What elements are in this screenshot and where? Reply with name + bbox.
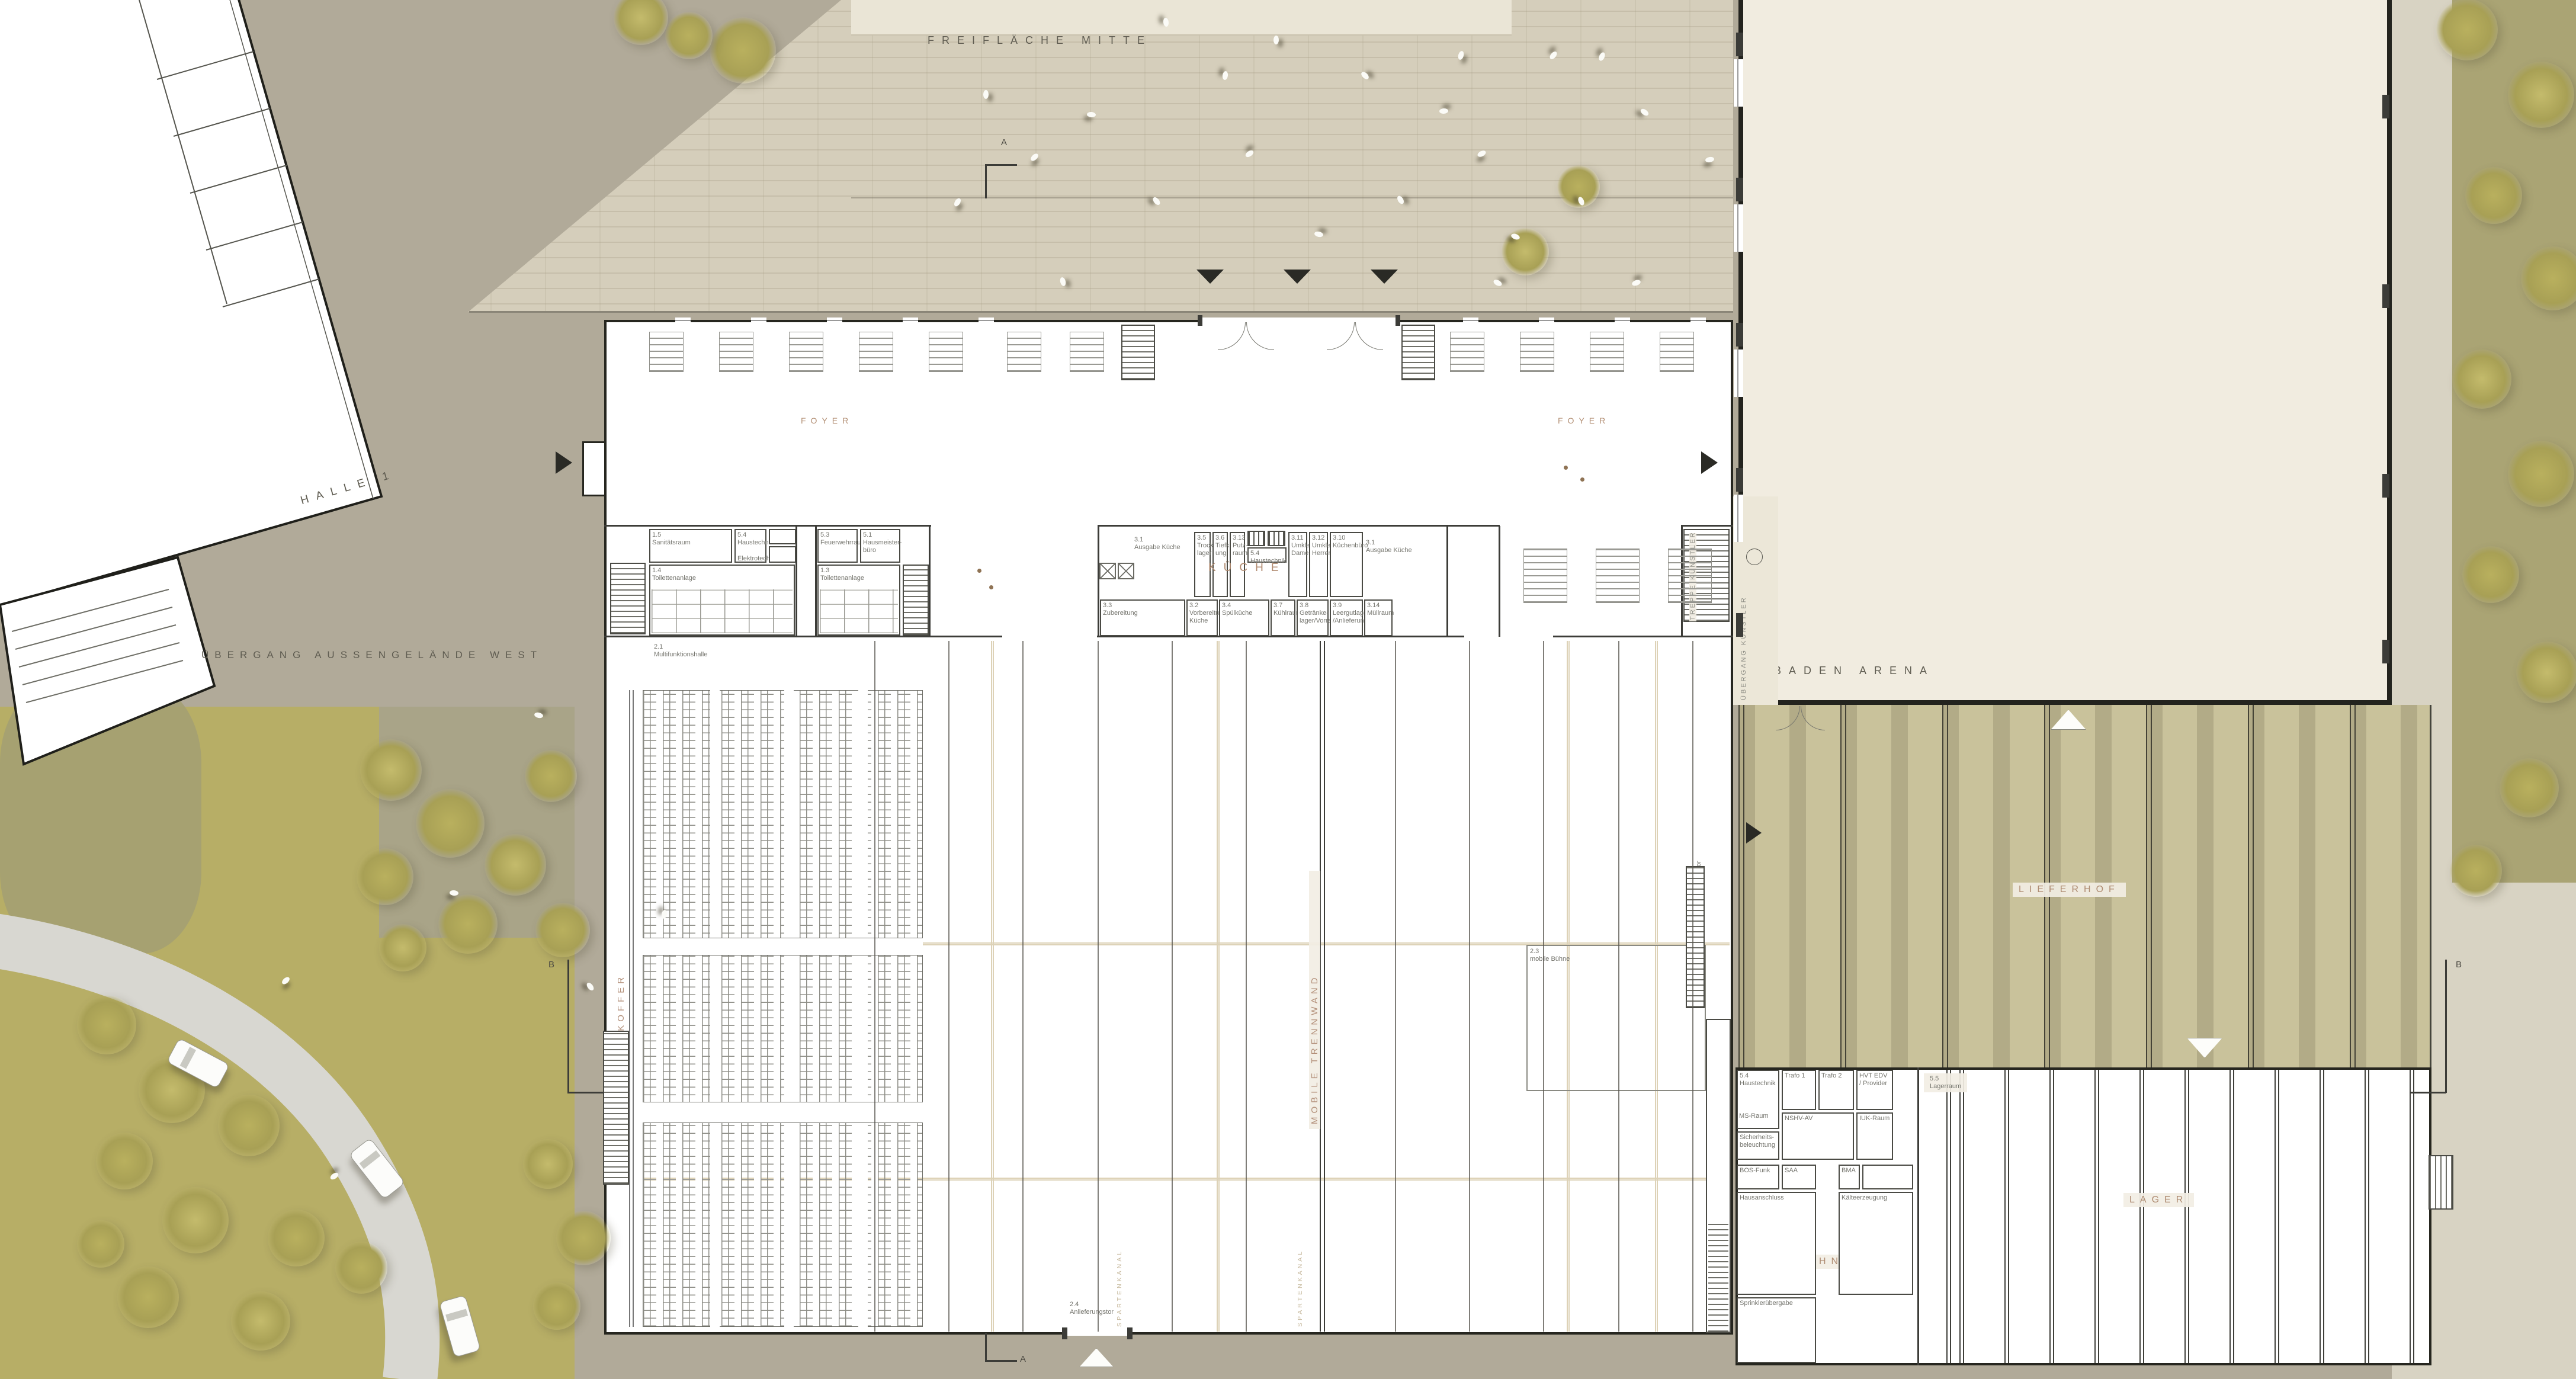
foyer-table-group xyxy=(1523,549,1567,603)
room-name: Sprinklerübergabe xyxy=(1740,1300,1793,1307)
tree xyxy=(416,789,485,858)
south-gate-opening xyxy=(1066,1331,1128,1336)
room-hausmeisterbuero: 5.1 Hausmeister-büro xyxy=(860,529,900,563)
room-name: SAA xyxy=(1785,1167,1798,1174)
room-id: 3.12 xyxy=(1312,534,1325,542)
room-id: 3.9 xyxy=(1333,602,1360,610)
tree xyxy=(710,17,776,84)
room-id: 3.6 xyxy=(1215,534,1225,542)
room-id: 3.3 xyxy=(1103,602,1182,610)
room-name: Müllraum xyxy=(1367,610,1394,617)
seating-aisle xyxy=(710,690,720,1327)
tree xyxy=(556,1211,611,1265)
room-name: Trafo 2 xyxy=(1821,1072,1842,1079)
tree xyxy=(357,848,413,905)
foyer-bench xyxy=(859,332,893,372)
tree xyxy=(2508,441,2574,507)
arena-pier xyxy=(2382,474,2389,498)
plant-dot xyxy=(1580,477,1584,482)
south-gate-name: Anlieferungstor xyxy=(1070,1309,1114,1316)
foyer-bench xyxy=(1007,332,1041,372)
door-leaf-line xyxy=(1463,320,1478,321)
west-passage-label: ÜBERGANG AUSSENGELÄNDE WEST xyxy=(201,649,543,661)
room-small xyxy=(1862,1165,1913,1189)
stair xyxy=(903,565,929,636)
wall xyxy=(1917,1067,1919,1365)
tree xyxy=(485,834,546,896)
section-line xyxy=(567,1092,604,1093)
arena-window xyxy=(1734,204,1743,252)
room-name: Trafo 1 xyxy=(1785,1072,1805,1079)
foyer-table-group xyxy=(1668,549,1712,603)
baden-arena-label: BADEN ARENA xyxy=(1774,665,1935,677)
section-marker-a-bottom: A xyxy=(1020,1354,1026,1364)
seating-aisle xyxy=(784,690,794,1327)
arena-pier xyxy=(1736,33,1743,56)
foyer-bench xyxy=(1520,332,1554,372)
section-line xyxy=(985,164,987,198)
room-id: 3.2 xyxy=(1189,602,1215,610)
arena-window xyxy=(1734,59,1743,107)
hall-room-label: 2.1 Multifunktionshalle xyxy=(654,643,708,659)
utility-line xyxy=(1217,641,1220,1332)
window-line xyxy=(1737,349,1738,397)
room-id: 3.1 xyxy=(1366,539,1412,547)
mobile-trennwand-label: MOBILE TRENNWAND xyxy=(1309,871,1320,1129)
room-id: 3.11 xyxy=(1291,534,1304,542)
room-name: Küchenbüro xyxy=(1333,542,1368,549)
foyer-bench xyxy=(719,332,753,372)
room-name: Getränke-lager/Vorrat xyxy=(1300,610,1333,624)
room-umkleide-damen: 3.11 Umkleide Damen xyxy=(1288,532,1307,597)
tree xyxy=(2450,845,2502,897)
lager-exterior-stair xyxy=(2429,1155,2453,1210)
section-line xyxy=(2410,1092,2446,1093)
wandkoffer-wall xyxy=(633,690,634,1327)
foyer-label-left: FOYER xyxy=(801,416,853,425)
room-id: 1.4 xyxy=(652,567,792,575)
foyer-table-group xyxy=(1596,549,1640,603)
hall-room-name: Multifunktionshalle xyxy=(654,651,708,658)
room-name: Ausgabe Küche xyxy=(1366,547,1412,554)
arena-window xyxy=(1734,495,1743,542)
room-id: 1.3 xyxy=(820,567,897,575)
room-id: 5.4 xyxy=(737,531,764,539)
room-umkleide-herren: 3.12 Umkleide Herren xyxy=(1309,532,1328,597)
baden-arena-building xyxy=(1738,0,2392,705)
utility-line xyxy=(991,641,994,1332)
room-id: 5.1 xyxy=(863,531,897,539)
column-grid-line xyxy=(1543,641,1544,1332)
tree xyxy=(2508,62,2574,128)
column-grid-line xyxy=(1618,641,1619,1332)
foyer-bench xyxy=(1070,332,1104,372)
column-grid-line xyxy=(1022,641,1024,1332)
room-id: 3.13 xyxy=(1233,534,1242,542)
room-vorbereitung: 3.2 Vorbereitung Küche xyxy=(1186,599,1218,636)
tree xyxy=(268,1210,325,1266)
wall xyxy=(815,526,817,637)
gate-jamb xyxy=(1198,315,1202,326)
door-leaf-line xyxy=(1690,320,1706,321)
room-kuehlraum: 3.7 Kühlraum xyxy=(1271,599,1295,636)
room-id: 3.1 xyxy=(1134,536,1180,544)
west-exterior-stair xyxy=(603,1031,629,1185)
toilet-stalls xyxy=(652,589,793,633)
west-stair xyxy=(610,563,646,634)
lift-shaft xyxy=(1099,563,1116,579)
room-id: 3.14 xyxy=(1367,602,1390,610)
room-muellraum: 3.14 Müllraum xyxy=(1364,599,1393,636)
room-hausanschluss: Hausanschluss xyxy=(1737,1192,1816,1295)
tree xyxy=(77,995,136,1054)
tree xyxy=(117,1266,179,1328)
tree xyxy=(231,1291,290,1351)
hall-room-id: 2.1 xyxy=(654,643,708,651)
tribune-seating xyxy=(643,690,923,1327)
column-grid-line xyxy=(1172,641,1173,1332)
room-ms-raum: MS-Raum xyxy=(1739,1112,1769,1120)
wall xyxy=(929,526,931,637)
room-kuechenbuero: 3.10 Küchenbüro xyxy=(1330,532,1363,597)
spartenkanal-label: SPARTENKANAL xyxy=(1116,1226,1123,1327)
room-id: 5.4 xyxy=(1740,1072,1776,1080)
room-id: 3.10 xyxy=(1333,534,1360,542)
east-wall-ladder xyxy=(1708,1223,1728,1332)
room-name: Toilettenanlage xyxy=(652,575,696,582)
plaza-label: FREIFLÄCHE MITTE xyxy=(928,34,1152,47)
tree xyxy=(77,1220,124,1268)
gate-jamb xyxy=(1127,1327,1133,1339)
column-grid-line xyxy=(948,641,949,1332)
tree xyxy=(2465,167,2522,224)
door-leaf-line xyxy=(979,320,994,321)
stage-id: 2.3 xyxy=(1530,948,1570,955)
tree xyxy=(218,1095,280,1156)
window-line xyxy=(1737,204,1738,252)
tree xyxy=(96,1133,153,1189)
room-name: Elektrotechnik xyxy=(737,555,764,563)
south-gate-id: 2.4 xyxy=(1070,1301,1114,1309)
lager-bays xyxy=(1920,1070,2429,1363)
section-marker-b-right: B xyxy=(2456,960,2462,970)
door-opening xyxy=(1464,634,1553,639)
tree xyxy=(438,894,498,954)
room-id: 5.3 xyxy=(820,531,855,539)
foyer-bench xyxy=(929,332,963,372)
room-sprinkleruebergabe: Sprinklerübergabe xyxy=(1737,1297,1816,1363)
room-saa: SAA xyxy=(1782,1165,1816,1189)
foyer-bench xyxy=(789,332,823,372)
lager-label: LAGER xyxy=(2123,1193,2194,1207)
arena-window xyxy=(1734,349,1743,397)
tree xyxy=(533,1282,580,1330)
room-id: 5.4 xyxy=(1250,550,1284,557)
site-plan-canvas: HALLE 1 BADEN ARENA LIEFERHOF ÜBERGANG K… xyxy=(0,0,2576,1379)
section-marker-b-left: B xyxy=(548,960,554,970)
room-zubereitung: 3.3 Zubereitung xyxy=(1100,599,1185,636)
room-name: Sanitätsraum xyxy=(652,539,691,546)
section-line xyxy=(985,164,1017,166)
wall xyxy=(1499,526,1500,637)
locker-block xyxy=(1268,531,1285,546)
room-small xyxy=(769,546,796,563)
door-leaf-line xyxy=(751,320,766,321)
arena-pier xyxy=(1736,468,1743,492)
tree xyxy=(335,1242,387,1294)
door-leaf-line xyxy=(675,320,691,321)
gate-jamb xyxy=(1062,1327,1067,1339)
window-line xyxy=(1737,59,1738,107)
wandkoffer-wall xyxy=(629,690,630,1327)
room-haustechnik-kueche: 5.4 Haustechnik xyxy=(1247,547,1287,563)
gate-jamb xyxy=(1396,315,1400,326)
room-spuelkueche: 3.4 Spülküche xyxy=(1219,599,1269,636)
section-line xyxy=(985,1333,987,1361)
column-grid-line xyxy=(1692,641,1693,1332)
room-name: Kälteerzeugung xyxy=(1842,1194,1887,1201)
room-name: BOS-Funk xyxy=(1740,1167,1770,1174)
window-line xyxy=(1737,495,1738,542)
room-haustechnik-elektro: 5.4 Haustechnik Elektrotechnik xyxy=(734,529,766,563)
room-name: Haustechnik xyxy=(737,539,764,547)
tree xyxy=(535,903,590,957)
arena-pier xyxy=(1736,323,1743,347)
seating-aisle xyxy=(858,690,868,1327)
tree xyxy=(379,924,426,971)
door-leaf-line xyxy=(827,320,842,321)
room-name: Toilettenanlage xyxy=(820,575,864,582)
tree xyxy=(1502,228,1549,275)
wall xyxy=(1098,526,1099,637)
foyer-bench xyxy=(1660,332,1694,372)
plant-dot xyxy=(989,585,993,589)
mobile-stage-area xyxy=(1526,945,1706,1091)
column-grid-line xyxy=(1098,641,1099,1332)
room-name: Hausanschluss xyxy=(1740,1194,1784,1201)
column-grid-line xyxy=(1395,641,1396,1332)
room-id: 3.8 xyxy=(1300,602,1326,610)
room-id: 5.5 xyxy=(1930,1075,1961,1083)
south-gate-label: 2.4 Anlieferungstor xyxy=(1070,1301,1114,1316)
room-name: IUK-Raum xyxy=(1859,1115,1890,1122)
foyer-label-right: FOYER xyxy=(1558,416,1610,425)
room-small xyxy=(769,529,796,544)
toilet-stalls xyxy=(820,589,898,633)
lagerraum-label: 5.5 Lagerraum xyxy=(1924,1073,1967,1092)
tree xyxy=(2436,0,2498,60)
section-line xyxy=(2445,960,2447,1093)
seating-aisle xyxy=(643,1102,923,1123)
stage-name: mobile Bühne xyxy=(1530,955,1570,963)
tree xyxy=(360,739,422,801)
tree xyxy=(523,1139,573,1189)
wall xyxy=(604,525,931,527)
room-id: 3.5 xyxy=(1197,534,1208,542)
room-name: Ausgabe Küche xyxy=(1134,544,1180,551)
foyer-bench xyxy=(1450,332,1484,372)
room-leergutlager: 3.9 Leergutlager /Anlieferung xyxy=(1330,599,1363,636)
mobile-trennwand-wall xyxy=(1324,641,1325,1332)
arena-pier xyxy=(1736,178,1743,201)
ausgabe-kueche-right: 3.1 Ausgabe Küche xyxy=(1366,539,1412,554)
room-trafo1: Trafo 1 xyxy=(1782,1070,1816,1110)
room-sicherheitsbeleuchtung: Sicherheits-beleuchtung xyxy=(1737,1131,1779,1160)
wall xyxy=(1098,525,1500,527)
room-name: NSHV-AV xyxy=(1785,1115,1812,1122)
foyer-stair xyxy=(1121,325,1155,380)
room-name: Feuerwehrraum xyxy=(820,539,867,546)
room-sanitaetsraum: 1.5 Sanitätsraum xyxy=(649,529,732,563)
person xyxy=(983,90,989,99)
room-name: Spülküche xyxy=(1222,610,1252,617)
ausgabe-kueche-left: 3.1 Ausgabe Küche xyxy=(1134,536,1180,551)
tree xyxy=(2516,642,2576,703)
section-marker-a-top: A xyxy=(1001,137,1007,147)
room-name: Putz-raum xyxy=(1233,542,1248,557)
room-iuk: IUK-Raum xyxy=(1856,1112,1893,1160)
plant-dot xyxy=(977,569,981,573)
room-nshv: NSHV-AV xyxy=(1782,1112,1854,1160)
room-bos-funk: BOS-Funk xyxy=(1737,1165,1779,1189)
kueche-label: KÜCHE xyxy=(1208,562,1287,575)
room-kaelteerzeugung: Kälteerzeugung xyxy=(1839,1192,1913,1295)
tree xyxy=(665,12,713,59)
stage-label: 2.3 mobile Bühne xyxy=(1530,948,1570,963)
lieferhof-label: LIEFERHOF xyxy=(2013,883,2126,897)
room-technik-haustechnik: 5.4 Haustechnik xyxy=(1737,1070,1779,1129)
room-name: Hausmeister-büro xyxy=(863,539,902,554)
room-name: Haustechnik xyxy=(1740,1080,1776,1087)
column-grid-line xyxy=(874,641,875,1332)
room-id: 1.5 xyxy=(652,531,729,539)
door-leaf-line xyxy=(903,320,918,321)
tree xyxy=(162,1187,229,1253)
tree xyxy=(525,750,577,802)
west-vestibule xyxy=(582,441,606,496)
passage-tree-circle xyxy=(1746,549,1763,565)
arena-pier xyxy=(2382,640,2389,663)
room-name: BMA xyxy=(1842,1167,1856,1174)
foyer-bench xyxy=(649,332,684,372)
door-leaf-line xyxy=(1615,320,1630,321)
room-trafo2: Trafo 2 xyxy=(1818,1070,1854,1110)
tree xyxy=(2462,546,2519,603)
room-bma: BMA xyxy=(1839,1165,1860,1189)
section-line xyxy=(567,960,569,1093)
locker-block xyxy=(1247,531,1265,546)
column-grid-line xyxy=(1469,641,1470,1332)
room-name: Sicherheits-beleuchtung xyxy=(1740,1134,1775,1149)
door-opening xyxy=(1002,634,1097,639)
room-name: Lagerraum xyxy=(1930,1083,1961,1090)
east-wall-stair xyxy=(1686,866,1705,1008)
seating-aisle xyxy=(643,938,923,955)
column-grid-line xyxy=(1246,641,1247,1332)
door-leaf-line xyxy=(1539,320,1554,321)
room-id: 3.4 xyxy=(1222,602,1266,610)
lift-shaft xyxy=(1118,563,1134,579)
arena-pier xyxy=(2382,284,2389,308)
room-name: HVT EDV / Provider xyxy=(1859,1072,1887,1087)
arena-pier xyxy=(1736,613,1743,637)
room-getraenkelager: 3.8 Getränke-lager/Vorrat xyxy=(1297,599,1329,636)
section-line xyxy=(985,1360,1017,1362)
tree xyxy=(2500,758,2559,817)
tree xyxy=(2452,349,2511,409)
wall xyxy=(1446,526,1448,637)
room-name: Zubereitung xyxy=(1103,610,1138,617)
room-id: 3.7 xyxy=(1273,602,1292,610)
wall xyxy=(1681,525,1733,527)
plant-dot xyxy=(1564,466,1568,470)
arena-pier xyxy=(2382,95,2389,118)
spartenkanal-label: SPARTENKANAL xyxy=(1297,1226,1304,1327)
room-hvt: HVT EDV / Provider xyxy=(1856,1070,1893,1110)
room-feuerwehrraum: 5.3 Feuerwehrraum xyxy=(817,529,858,563)
foyer-stair xyxy=(1401,325,1435,380)
foyer-bench xyxy=(1590,332,1624,372)
